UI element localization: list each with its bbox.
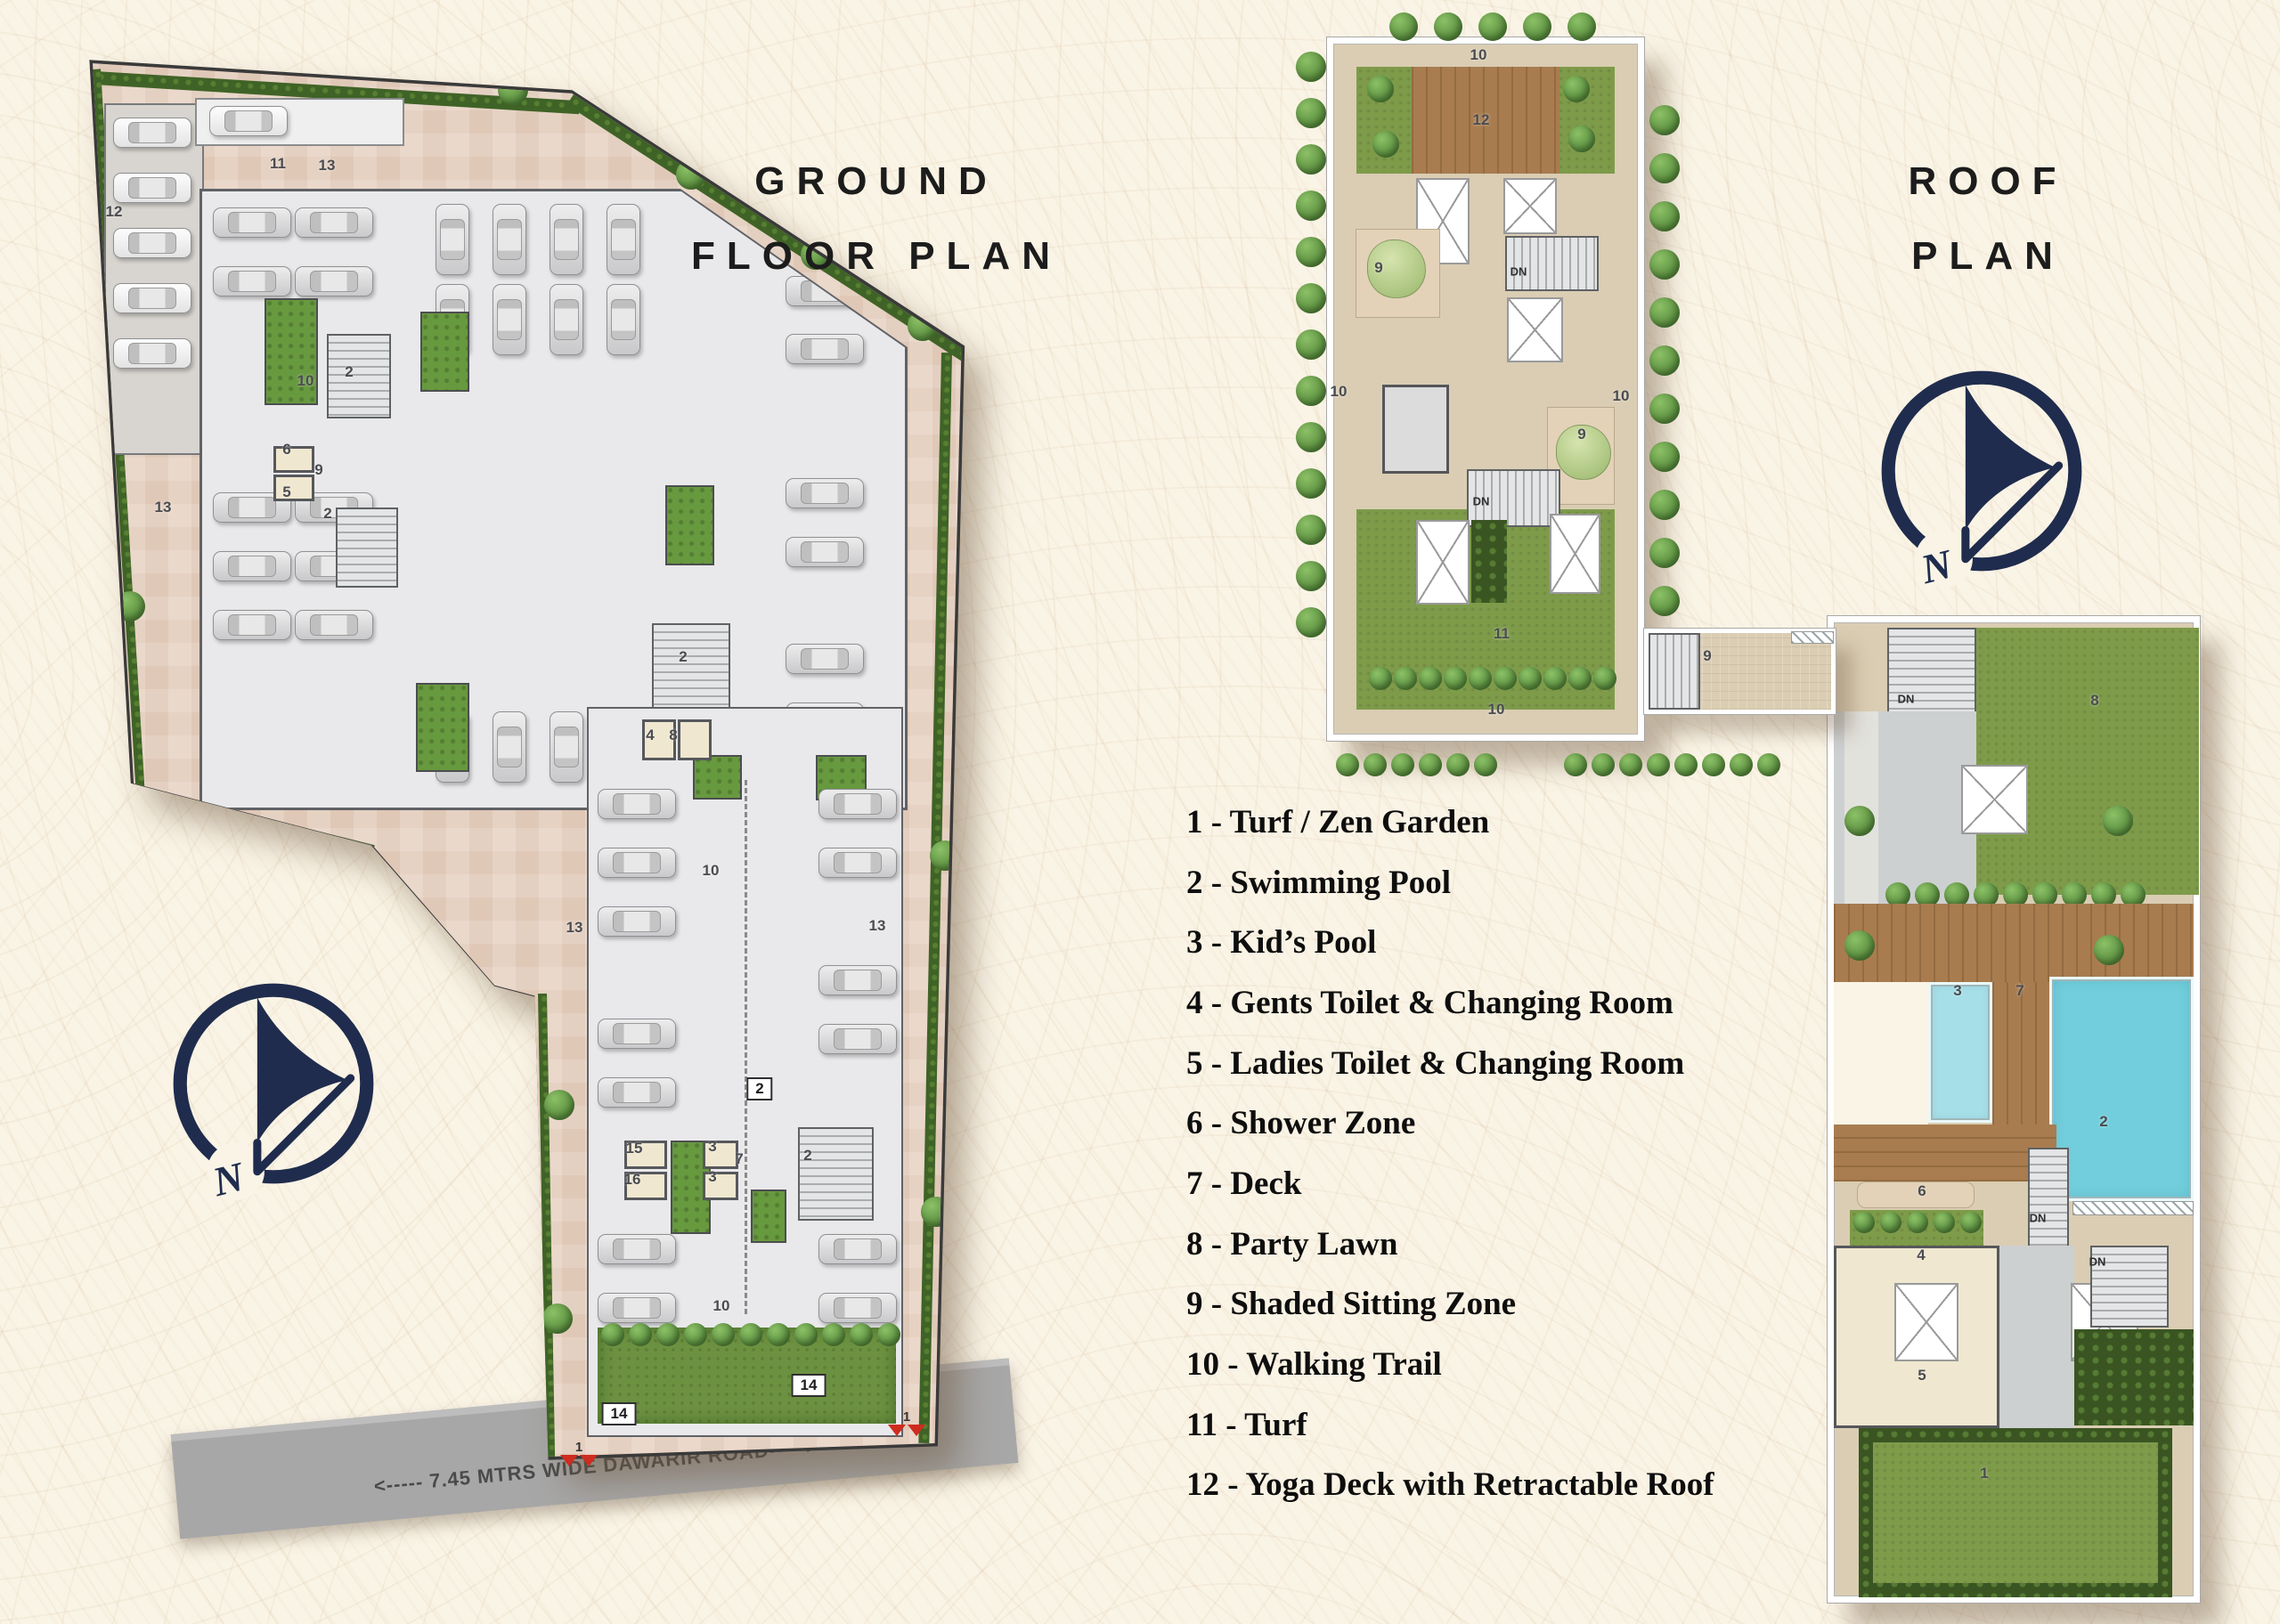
roof-plan-title-line2: PLAN — [1810, 237, 2166, 276]
parked-car — [550, 284, 583, 355]
party-lawn — [1976, 628, 2199, 895]
shrub-icon — [1907, 1212, 1928, 1233]
perimeter-hedge — [918, 353, 952, 1443]
tree-icon — [1844, 806, 1875, 836]
shrub-icon — [1543, 667, 1567, 690]
shrub-icon — [1934, 1212, 1955, 1233]
skylight — [1507, 297, 1563, 362]
store-room — [624, 1172, 667, 1200]
deck — [1834, 1125, 2056, 1181]
planter — [416, 683, 469, 772]
skylight — [1416, 520, 1470, 605]
tree-icon — [2103, 806, 2133, 836]
parked-car — [598, 1234, 676, 1264]
shrub-icon — [877, 1323, 900, 1346]
shrub-icon — [767, 1323, 790, 1346]
shrub-icon — [850, 1323, 873, 1346]
shrub-icon — [1494, 667, 1517, 690]
parked-car — [493, 284, 526, 355]
shrub-icon — [822, 1323, 845, 1346]
utility-room — [273, 446, 314, 473]
staircase-down — [2090, 1246, 2169, 1328]
utility-room — [703, 1141, 738, 1169]
gray-court — [1999, 1246, 2074, 1428]
north-compass-icon: N — [1865, 354, 2098, 588]
tree-icon — [1372, 131, 1399, 158]
parked-car — [786, 644, 864, 674]
parked-car — [598, 848, 676, 878]
skylight — [1503, 178, 1557, 234]
legend-item-11: 11 - Turf — [1186, 1406, 1810, 1445]
parked-car — [818, 789, 897, 819]
staircase — [336, 507, 398, 588]
tree-icon — [930, 840, 960, 871]
legend-item-7: 7 - Deck — [1186, 1165, 1810, 1204]
staircase — [798, 1127, 874, 1221]
parked-car — [786, 537, 864, 567]
shrub-icon — [1369, 667, 1392, 690]
parked-car — [113, 118, 191, 148]
shrub-icon — [601, 1323, 624, 1346]
tree-icon — [2094, 935, 2124, 965]
parked-car — [598, 789, 676, 819]
walkway-steps — [1649, 633, 1700, 710]
utility-room — [703, 1172, 738, 1200]
parked-car — [607, 284, 640, 355]
tree-icon — [1844, 930, 1875, 961]
shrub-icon — [1880, 1212, 1901, 1233]
hatched-strip — [2072, 1201, 2194, 1215]
legend-item-9: 9 - Shaded Sitting Zone — [1186, 1285, 1810, 1324]
legend-item-10: 10 - Walking Trail — [1186, 1345, 1810, 1384]
tree-icon — [1367, 76, 1394, 102]
staircase — [327, 334, 391, 418]
utility-room — [678, 719, 712, 760]
shrub-icon — [712, 1323, 735, 1346]
tree-icon — [115, 591, 145, 621]
legend-item-6: 6 - Shower Zone — [1186, 1104, 1810, 1143]
skylight — [1894, 1283, 1958, 1361]
parked-car — [213, 610, 291, 640]
tree-icon — [542, 1303, 573, 1334]
parked-car — [213, 551, 291, 581]
parked-car — [550, 711, 583, 783]
legend-item-1: 1 - Turf / Zen Garden — [1186, 803, 1810, 842]
shrub-icon — [684, 1323, 707, 1346]
tree-icon — [1568, 126, 1595, 152]
parked-car — [213, 207, 291, 238]
visitor-parking-strip — [104, 103, 204, 455]
ground-plan-title-line2: FLOOR PLAN — [680, 237, 1072, 276]
store-room — [624, 1141, 667, 1169]
parked-car — [493, 711, 526, 783]
roof-plan-upper-block — [1327, 37, 1644, 741]
north-compass-icon: N — [157, 967, 390, 1200]
shrub-icon — [1444, 667, 1467, 690]
planter — [751, 1190, 786, 1243]
legend-item-5: 5 - Ladies Toilet & Changing Room — [1186, 1044, 1810, 1084]
parked-car — [818, 848, 897, 878]
brochure-page: <----- 7.45 MTRS WIDE DAWARIR ROAD----->… — [0, 0, 2280, 1624]
canopy-tree-icon — [1556, 425, 1611, 480]
parked-car — [598, 906, 676, 937]
parked-car — [818, 1024, 897, 1054]
parked-car — [598, 1293, 676, 1323]
tree-icon — [544, 1090, 574, 1120]
yoga-deck — [1412, 67, 1559, 174]
legend-item-4: 4 - Gents Toilet & Changing Room — [1186, 984, 1810, 1023]
staircase — [652, 623, 730, 719]
parked-car — [113, 283, 191, 313]
parked-car — [113, 173, 191, 203]
zen-garden-turf — [1873, 1442, 2158, 1583]
planter — [665, 485, 714, 565]
service-room — [1382, 385, 1449, 474]
shrub-icon — [794, 1323, 818, 1346]
perimeter-hedge — [538, 994, 555, 1461]
shrub-icon — [1960, 1212, 1982, 1233]
parked-car — [113, 338, 191, 369]
skylight — [1961, 765, 2028, 834]
legend-item-8: 8 - Party Lawn — [1186, 1225, 1810, 1264]
kids-pool — [1928, 982, 1992, 1123]
tree-icon — [921, 1197, 951, 1227]
shrub-icon — [1568, 667, 1592, 690]
aisle-centerline — [745, 780, 747, 1314]
tree-icon — [186, 800, 216, 831]
parked-car — [598, 1077, 676, 1108]
parked-car — [209, 106, 288, 136]
shrub-bed — [2074, 1329, 2194, 1425]
parked-car — [213, 266, 291, 296]
roof-plan-title: ROOF PLAN — [1810, 162, 2166, 276]
parked-car — [295, 266, 373, 296]
lower-garage — [587, 707, 903, 1437]
shrub-icon — [1469, 667, 1492, 690]
staircase-down — [1505, 236, 1599, 291]
utility-room — [273, 475, 314, 501]
roof-plan-connector-walkway — [1644, 629, 1836, 714]
swimming-pool — [2049, 977, 2194, 1201]
void — [1834, 982, 1928, 1125]
shrub-icon — [1593, 667, 1616, 690]
legend-item-2: 2 - Swimming Pool — [1186, 864, 1810, 903]
parked-car — [295, 610, 373, 640]
shrub-icon — [656, 1323, 680, 1346]
planter — [265, 298, 318, 405]
utility-room — [642, 719, 676, 760]
legend-item-3: 3 - Kid’s Pool — [1186, 923, 1810, 962]
parked-car — [550, 204, 583, 275]
amenities-legend: 1 - Turf / Zen Garden2 - Swimming Pool3 … — [1186, 803, 1810, 1526]
parked-car — [295, 207, 373, 238]
parked-car — [493, 204, 526, 275]
parked-car — [818, 1293, 897, 1323]
zen-garden-border — [1859, 1428, 2172, 1597]
roof-plan-title-line1: ROOF — [1810, 162, 2166, 201]
parked-car — [436, 204, 469, 275]
ground-plan-title: GROUND FLOOR PLAN — [680, 162, 1072, 276]
planter — [420, 312, 469, 392]
ground-plan-title-line1: GROUND — [680, 162, 1072, 201]
shrub-icon — [739, 1323, 762, 1346]
skylight — [1550, 514, 1600, 594]
hatched-path — [1791, 631, 1834, 644]
shrub-icon — [1394, 667, 1417, 690]
canopy-tree-icon — [1367, 240, 1426, 298]
legend-item-12: 12 - Yoga Deck with Retractable Roof — [1186, 1466, 1810, 1505]
shrub-icon — [1519, 667, 1542, 690]
shrub-strip — [1471, 520, 1507, 603]
tree-icon — [1563, 76, 1590, 102]
parked-car — [786, 478, 864, 508]
roof-plan-lower-block — [1828, 616, 2200, 1603]
parked-car — [607, 204, 640, 275]
shrub-icon — [1853, 1212, 1875, 1233]
parked-car — [818, 1234, 897, 1264]
deck — [1834, 904, 2194, 982]
staircase-down — [1887, 628, 1976, 713]
parked-car — [786, 334, 864, 364]
shrub-icon — [1419, 667, 1442, 690]
shower-zone — [1857, 1181, 1975, 1208]
parked-car — [113, 228, 191, 258]
parked-car — [818, 965, 897, 995]
planter — [693, 755, 742, 800]
staircase-down — [1467, 469, 1560, 527]
parked-car — [598, 1019, 676, 1049]
deck-strip — [1992, 982, 2049, 1125]
shrub-icon — [629, 1323, 652, 1346]
